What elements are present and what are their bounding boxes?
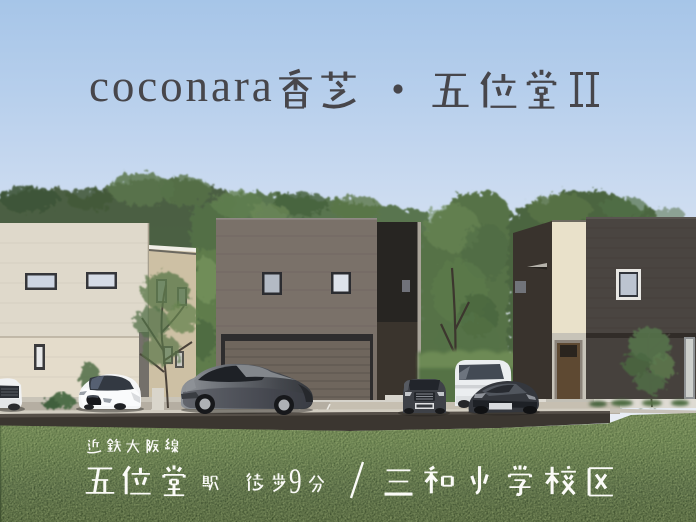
svg-text:coconara: coconara <box>89 61 275 111</box>
svg-text:9: 9 <box>289 461 302 502</box>
